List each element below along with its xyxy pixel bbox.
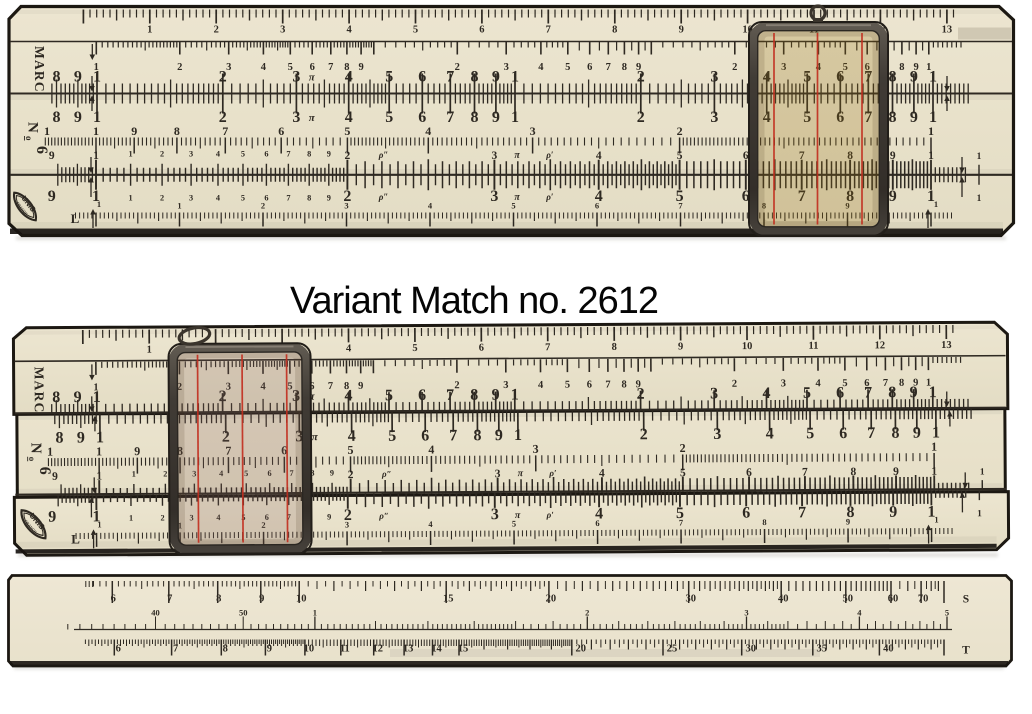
svg-text:T: T bbox=[962, 645, 970, 657]
svg-text:4: 4 bbox=[857, 608, 862, 618]
svg-text:S: S bbox=[963, 594, 969, 606]
svg-text:5: 5 bbox=[945, 608, 949, 618]
svg-text:1: 1 bbox=[313, 608, 317, 618]
svg-text:6: 6 bbox=[116, 644, 121, 655]
svg-text:2: 2 bbox=[585, 608, 589, 618]
svg-text:50: 50 bbox=[239, 608, 248, 618]
svg-text:Variant Match no. 2612: Variant Match no. 2612 bbox=[290, 280, 658, 322]
svg-text:6: 6 bbox=[111, 594, 116, 605]
svg-text:12: 12 bbox=[372, 644, 383, 655]
svg-text:8: 8 bbox=[216, 594, 221, 605]
svg-text:25: 25 bbox=[667, 644, 678, 655]
svg-text:3: 3 bbox=[744, 608, 748, 618]
svg-text:40: 40 bbox=[151, 608, 160, 618]
svg-text:60: 60 bbox=[888, 594, 899, 605]
svg-text:8: 8 bbox=[223, 644, 228, 655]
svg-text:11: 11 bbox=[340, 644, 350, 655]
svg-text:20: 20 bbox=[546, 594, 557, 605]
svg-text:30: 30 bbox=[685, 594, 696, 605]
svg-text:10: 10 bbox=[296, 594, 307, 605]
svg-text:15: 15 bbox=[443, 594, 454, 605]
svg-text:30: 30 bbox=[745, 644, 756, 655]
svg-text:14: 14 bbox=[431, 644, 442, 655]
svg-text:70: 70 bbox=[918, 594, 929, 605]
svg-text:40: 40 bbox=[778, 594, 789, 605]
svg-text:7: 7 bbox=[167, 594, 172, 605]
svg-text:7: 7 bbox=[173, 644, 178, 655]
svg-text:9: 9 bbox=[259, 594, 264, 605]
svg-text:40: 40 bbox=[883, 644, 894, 655]
svg-text:13: 13 bbox=[403, 644, 414, 655]
svg-text:50: 50 bbox=[843, 594, 854, 605]
svg-text:10: 10 bbox=[304, 644, 315, 655]
svg-text:9: 9 bbox=[267, 644, 272, 655]
svg-text:15: 15 bbox=[458, 644, 469, 655]
svg-text:35: 35 bbox=[817, 644, 828, 655]
svg-text:20: 20 bbox=[576, 644, 587, 655]
